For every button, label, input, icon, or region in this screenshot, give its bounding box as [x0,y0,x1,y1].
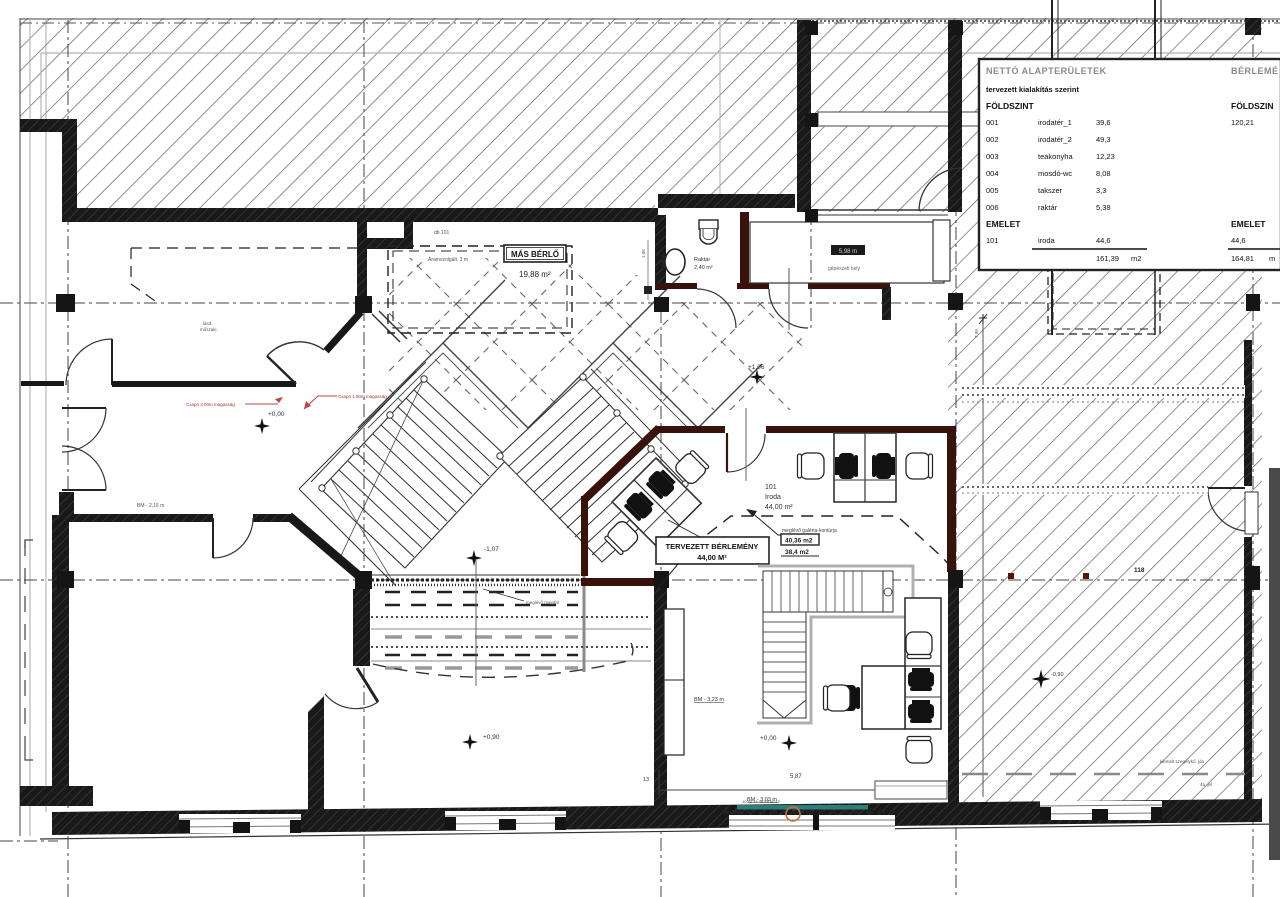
svg-text:iroda: iroda [1038,236,1056,245]
svg-text:44,6: 44,6 [1096,236,1111,245]
svg-text:FÖLDSZIN: FÖLDSZIN [1231,101,1274,111]
svg-text:13: 13 [643,777,649,783]
svg-text:teakonyha: teakonyha [1038,152,1073,161]
svg-text:-1,07: -1,07 [484,546,499,553]
svg-text:005: 005 [986,186,999,195]
svg-text:44,00 M²: 44,00 M² [697,553,727,562]
svg-text:Raktár: Raktár [694,257,710,263]
svg-text:raktár: raktár [1038,203,1058,212]
svg-text:mosdó-wc: mosdó-wc [1038,169,1072,178]
svg-text:db 101: db 101 [434,230,450,236]
svg-text:12,23: 12,23 [1096,152,1115,161]
svg-text:001: 001 [986,118,999,127]
svg-text:EMELET: EMELET [986,219,1021,229]
svg-text:101: 101 [986,236,999,245]
svg-text:+1,06: +1,06 [748,364,765,371]
svg-text:39,6: 39,6 [1096,118,1111,127]
svg-text:meglévő üvegfal: meglévő üvegfal [526,600,559,605]
svg-text:19,88 m²: 19,88 m² [519,270,551,279]
svg-text:lásd:: lásd: [203,321,213,326]
svg-text:3,3: 3,3 [1096,186,1106,195]
svg-text:161,39: 161,39 [1096,254,1119,263]
svg-text:BÉRLEMÉ: BÉRLEMÉ [1231,66,1279,76]
svg-text:006: 006 [986,203,999,212]
svg-text:m: m [1269,254,1275,263]
svg-text:MÁS BÉRLŐ: MÁS BÉRLŐ [511,250,559,259]
svg-text:BM - 2,16 m: BM - 2,16 m [137,503,164,509]
svg-text:Áramszolgált. 3 m: Áramszolgált. 3 m [428,256,468,263]
svg-text:FÖLDSZINT: FÖLDSZINT [986,101,1034,111]
svg-text:takszer: takszer [1038,186,1063,195]
svg-text:tervezett kialakítás szerint: tervezett kialakítás szerint [986,85,1079,94]
svg-text:2,40 m²: 2,40 m² [694,265,713,271]
svg-text:+0,00: +0,00 [760,735,777,742]
svg-text:40,36 m2: 40,36 m2 [785,538,813,545]
svg-text:5,98 m: 5,98 m [839,249,857,255]
svg-text:meglévő galéria-kontúrja: meglévő galéria-kontúrja [782,528,837,534]
svg-text:NETTÓ ALAPTERÜLETEK: NETTÓ ALAPTERÜLETEK [986,65,1107,76]
svg-text:-0,90: -0,90 [1051,672,1064,678]
svg-text:44,6: 44,6 [1231,236,1246,245]
svg-text:004: 004 [986,169,999,178]
svg-text:38,4 m2: 38,4 m2 [785,549,809,556]
svg-text:kiemelt szegélykő. jda: kiemelt szegélykő. jda [1160,759,1205,764]
svg-text:002: 002 [986,135,999,144]
svg-text:44,00 m²: 44,00 m² [765,504,793,511]
svg-text:Csapó 3.00m magasság: Csapó 3.00m magasság [186,402,235,407]
svg-text:120,21: 120,21 [1231,118,1254,127]
svg-text:10 42 44 46 48 50 52: 10 42 44 46 48 50 52 [742,799,781,804]
svg-text:7,98: 7,98 [974,329,979,338]
svg-text:gépészeti hely: gépészeti hely [828,266,860,272]
svg-text:m2: m2 [1131,254,1141,263]
svg-text:5,87: 5,87 [790,774,802,780]
svg-text:4a. jel: 4a. jel [1200,782,1212,787]
svg-text:BM - 3,23 m: BM - 3,23 m [694,697,724,703]
svg-text:003: 003 [986,152,999,161]
svg-text:műszaki: műszaki [200,327,217,332]
svg-text:irodatér_2: irodatér_2 [1038,135,1072,144]
svg-text:1,06: 1,06 [641,249,646,258]
svg-text:101: 101 [765,484,777,491]
svg-text:TERVEZETT BÉRLEMÉNY: TERVEZETT BÉRLEMÉNY [666,542,759,551]
svg-text:Iroda: Iroda [765,494,781,501]
svg-text:+0,90: +0,90 [483,734,500,741]
svg-text:+0,00: +0,00 [268,411,285,418]
svg-text:EMELET: EMELET [1231,219,1266,229]
svg-text:118: 118 [1134,567,1145,574]
svg-text:Csapó 1.90m magasság: Csapó 1.90m magasság [338,394,387,399]
svg-text:5,38: 5,38 [1096,203,1111,212]
svg-text:49,3: 49,3 [1096,135,1111,144]
svg-text:irodatér_1: irodatér_1 [1038,118,1072,127]
svg-text:164,81: 164,81 [1231,254,1254,263]
svg-text:8,08: 8,08 [1096,169,1111,178]
